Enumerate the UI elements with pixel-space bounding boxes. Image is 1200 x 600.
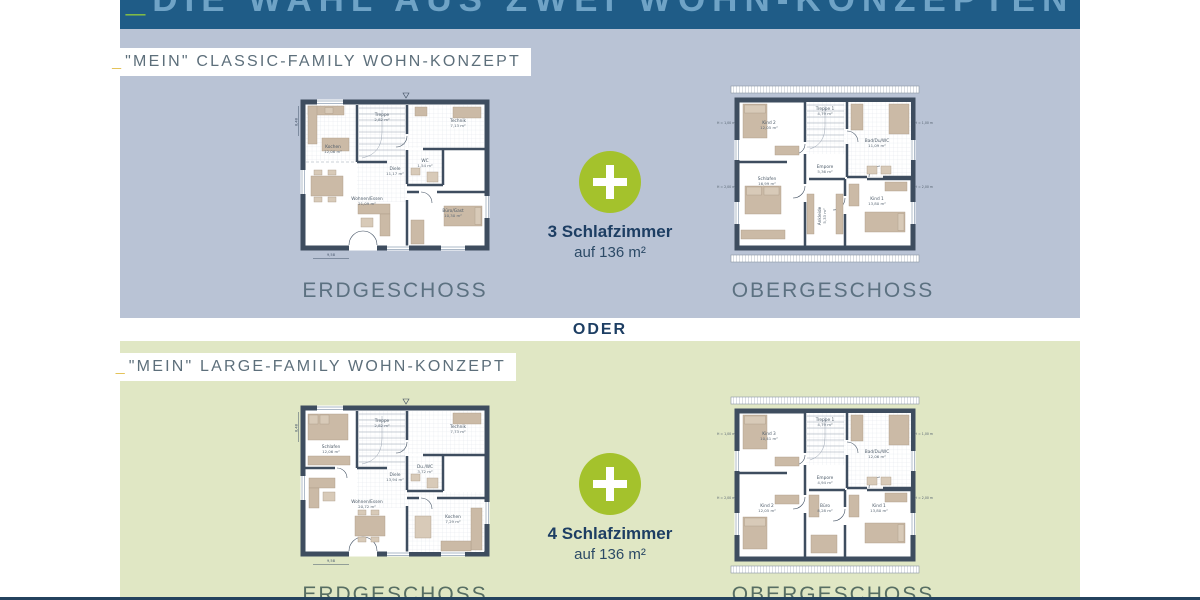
room-area: 13,94 m² [386, 477, 404, 482]
room-area: 4,79 m² [817, 422, 833, 427]
label-underscore-accent: _ [116, 358, 127, 376]
plus-badge-classic: 3 Schlafzimmer auf 136 m² [540, 151, 680, 261]
room-area: 3,72 m² [417, 469, 433, 474]
page-title: _DIE WAHL AUS ZWEI WOHN-KONZEPTEN [120, 0, 1080, 19]
floor-label-obergeschoss: OBERGESCHOSS [683, 279, 983, 303]
label-underscore-accent: _ [112, 53, 123, 71]
room-area: 10,41 m² [760, 436, 778, 441]
room-area: 8,28 m² [817, 508, 833, 513]
section-title-text: "MEIN" LARGE-FAMILY WOHN-KONZEPT [129, 358, 506, 376]
section-title-large: _"MEIN" LARGE-FAMILY WOHN-KONZEPT [120, 353, 516, 381]
plus-icon [579, 151, 641, 213]
dim-width: 9,58 [327, 253, 336, 257]
room-area: 13,80 m² [870, 508, 888, 513]
room-area: 11,09 m² [868, 143, 886, 148]
floorplan-classic-erdgeschoss: 8,48 [295, 92, 495, 264]
area-total: auf 136 m² [540, 546, 680, 563]
room-area: 13,80 m² [868, 201, 886, 206]
title-underscore-accent: _ [126, 0, 152, 19]
room-area: 7,73 m² [450, 429, 466, 434]
area-total: auf 136 m² [540, 244, 680, 261]
room-area: 20,72 m² [358, 504, 376, 509]
section-large-family: _"MEIN" LARGE-FAMILY WOHN-KONZEPT 8,48 [120, 341, 1080, 597]
room-area: 12,05 m² [760, 125, 778, 130]
room-area: 12,06 m² [322, 449, 340, 454]
dim-h2: H = 2,00 m [717, 496, 735, 500]
oder-divider: ODER [120, 318, 1080, 341]
dim-height: 8,48 [295, 117, 299, 126]
dim-h1: H = 1,00 m [717, 432, 735, 436]
bedroom-count: 4 Schlafzimmer [540, 524, 680, 544]
room-area: 4,79 m² [817, 111, 833, 116]
dim-h2-right: H = 2,00 m [915, 185, 933, 189]
dim-h2: H = 2,00 m [717, 185, 735, 189]
room-area: 7,13 m² [450, 123, 466, 128]
room-area: 5,33 m² [822, 208, 827, 224]
room-area: 1,54 m² [417, 163, 433, 168]
room-area: 2,82 m² [374, 117, 390, 122]
room-area: 12,06 m² [324, 149, 342, 154]
floorplan-large-erdgeschoss: 8,48 [295, 398, 495, 570]
dim-h1: H = 1,00 m [717, 121, 735, 125]
dim-h1-right: H = 1,00 m [915, 432, 933, 436]
dim-h2-right: H = 2,00 m [915, 496, 933, 500]
bedroom-count: 3 Schlafzimmer [540, 222, 680, 242]
room-area: 21,09 m² [358, 201, 376, 206]
dim-h1-right: H = 1,00 m [915, 121, 933, 125]
floorplan-large-obergeschoss: H = 1,00 m H = 2,00 m H = 1,00 m H = 2,0… [717, 395, 933, 575]
section-title-text: "MEIN" CLASSIC-FAMILY WOHN-KONZEPT [125, 53, 521, 71]
room-area: 10,30 m² [444, 213, 462, 218]
plus-badge-large: 4 Schlafzimmer auf 136 m² [540, 453, 680, 563]
room-area: 7,29 m² [445, 519, 461, 524]
plus-icon [579, 453, 641, 515]
room-area: 11,17 m² [386, 171, 404, 176]
floor-label-erdgeschoss: ERDGESCHOSS [245, 279, 545, 303]
brochure-page: _DIE WAHL AUS ZWEI WOHN-KONZEPTEN _"MEIN… [0, 0, 1200, 600]
room-area: 16,99 m² [758, 181, 776, 186]
room-area: 2,82 m² [374, 423, 390, 428]
room-area: 12,06 m² [868, 454, 886, 459]
dim-width: 9,58 [327, 559, 336, 563]
oder-label: ODER [573, 321, 627, 339]
section-title-classic: _"MEIN" CLASSIC-FAMILY WOHN-KONZEPT [120, 48, 531, 76]
room-area: 12,05 m² [758, 508, 776, 513]
room-area: 5,36 m² [817, 169, 833, 174]
page-header: _DIE WAHL AUS ZWEI WOHN-KONZEPTEN [120, 0, 1080, 29]
dim-height: 8,48 [295, 423, 299, 432]
title-text: DIE WAHL AUS ZWEI WOHN-KONZEPTEN [152, 0, 1074, 19]
floorplan-classic-obergeschoss: H = 1,00 m H = 2,00 m H = 1,00 m H = 2,0… [717, 84, 933, 264]
room-area: 4,94 m² [817, 480, 833, 485]
section-classic-family: _"MEIN" CLASSIC-FAMILY WOHN-KONZEPT 8,48 [120, 29, 1080, 318]
